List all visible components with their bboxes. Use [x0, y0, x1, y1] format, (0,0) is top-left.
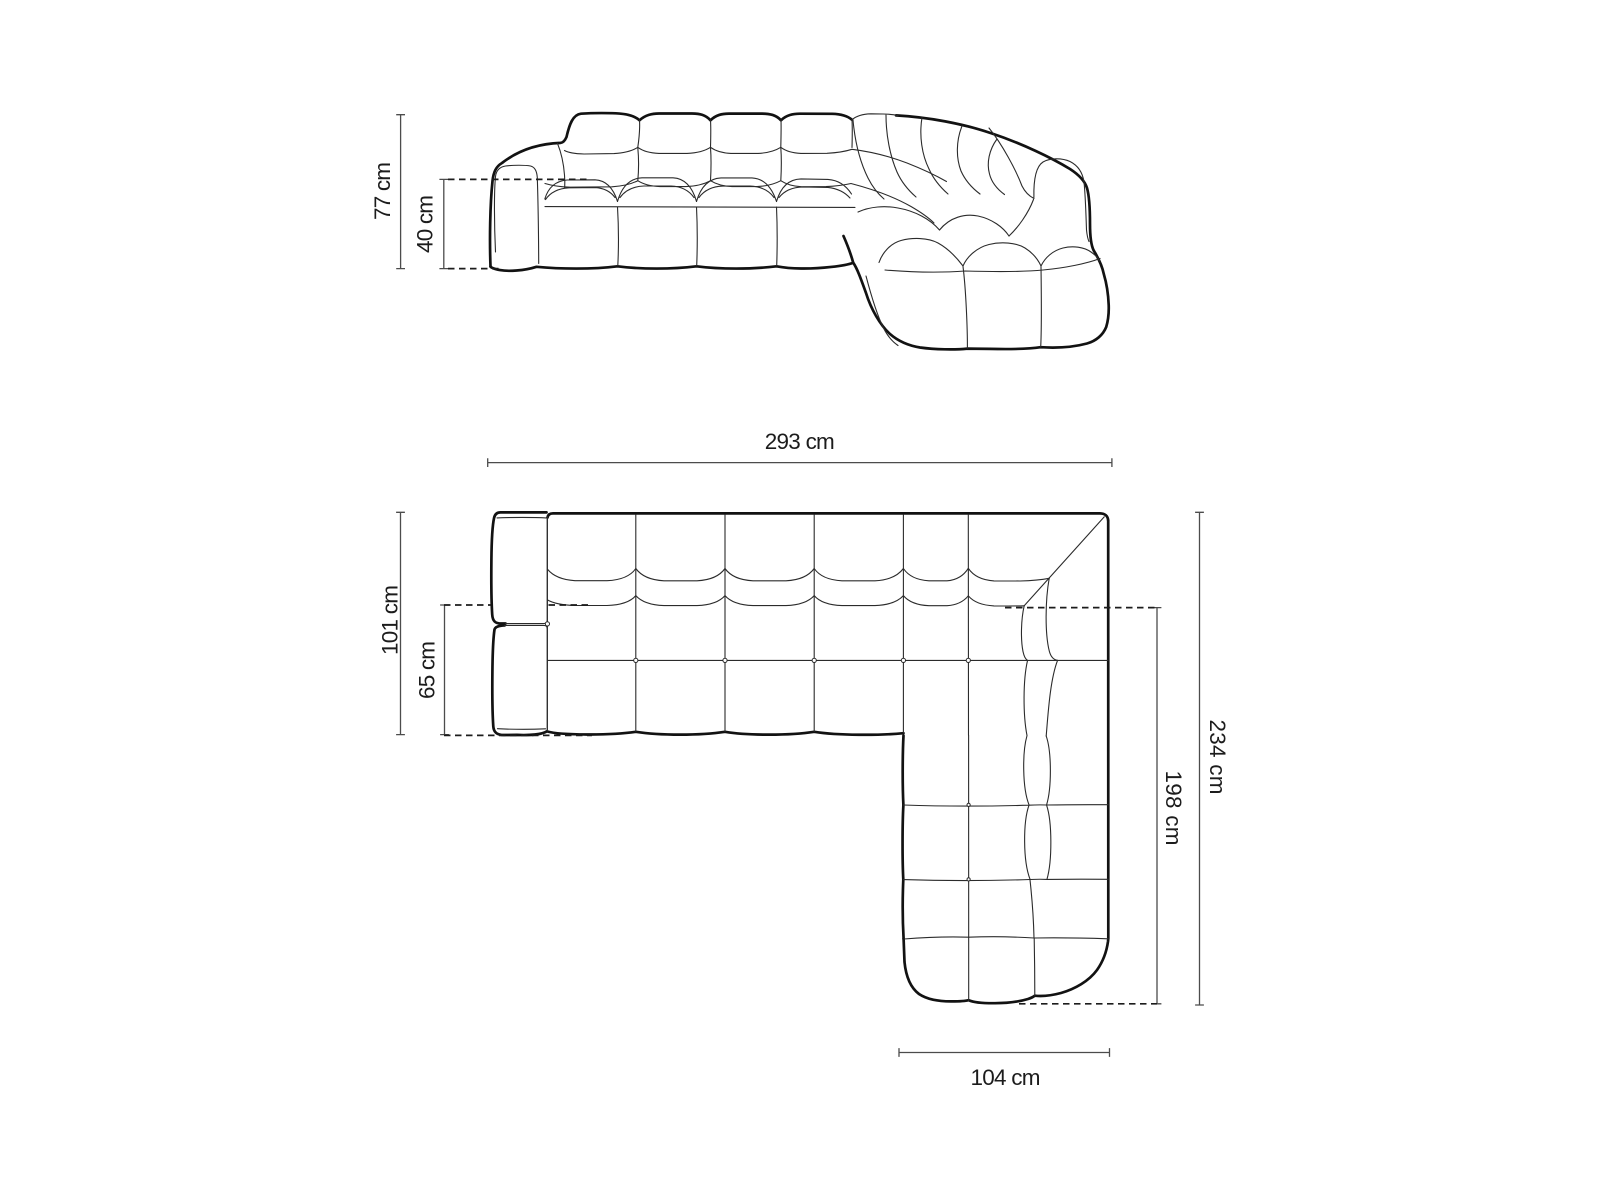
- svg-text:77 cm: 77 cm: [370, 162, 395, 220]
- svg-text:101 cm: 101 cm: [378, 585, 403, 655]
- svg-text:234 cm: 234 cm: [1205, 720, 1230, 795]
- svg-text:104 cm: 104 cm: [971, 1065, 1041, 1090]
- svg-text:198 cm: 198 cm: [1161, 771, 1186, 846]
- svg-text:65 cm: 65 cm: [415, 641, 440, 699]
- svg-text:40 cm: 40 cm: [413, 195, 438, 253]
- svg-text:293 cm: 293 cm: [765, 429, 835, 454]
